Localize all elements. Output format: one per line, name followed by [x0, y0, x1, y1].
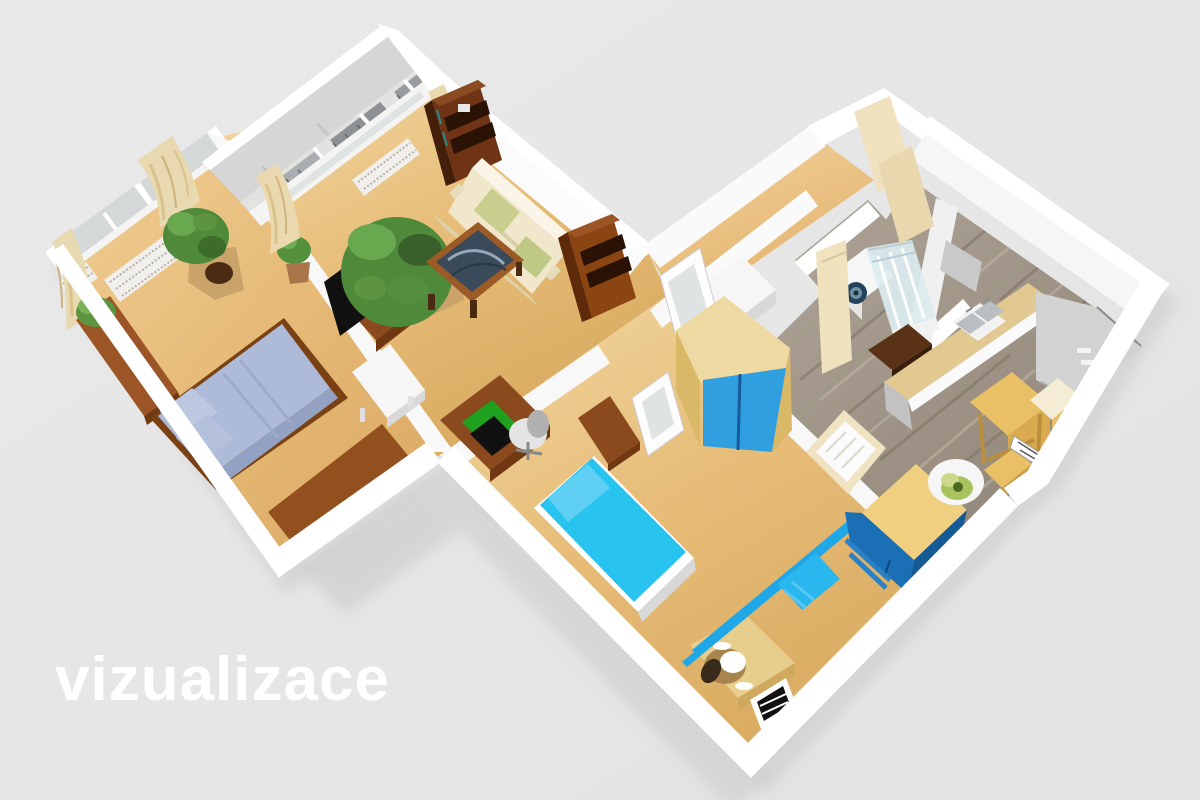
- svg-text:vizualizace: vizualizace: [55, 645, 390, 714]
